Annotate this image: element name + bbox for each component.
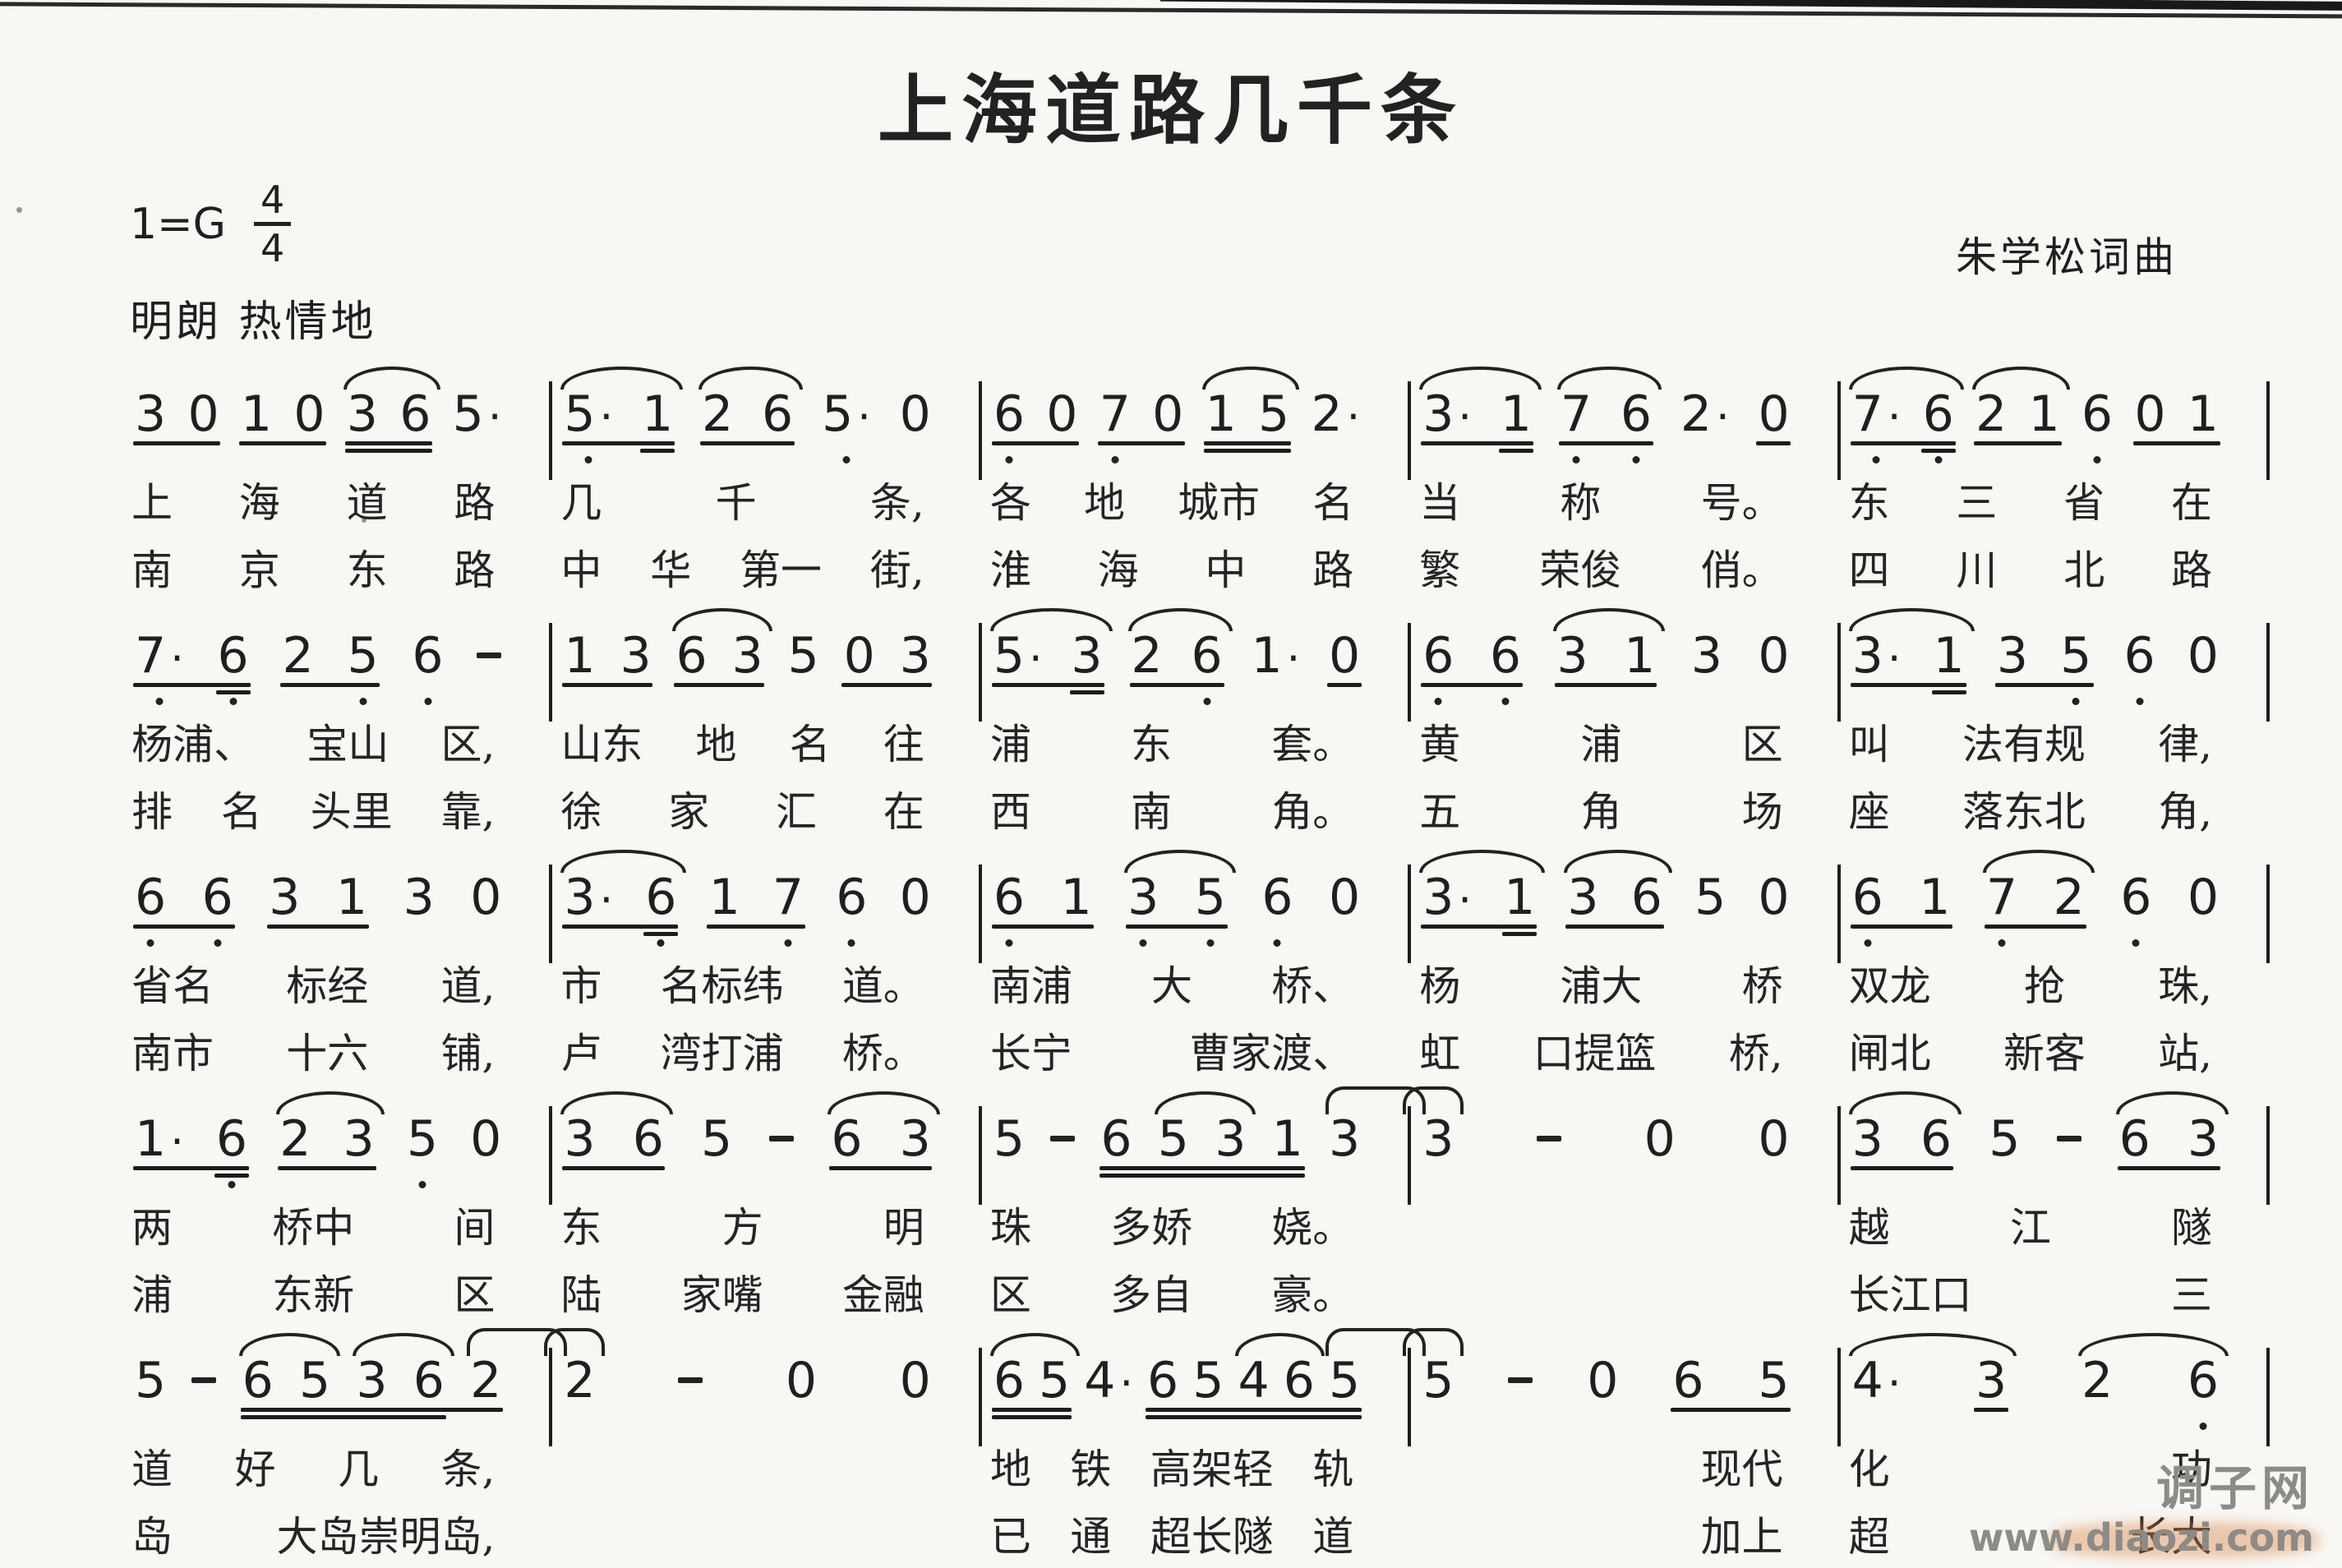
- lyric-line-1: 双龙抢珠,: [1841, 953, 2266, 1012]
- note: 2·: [1680, 390, 1730, 439]
- lyric-line-1: 省名标经道,: [123, 953, 549, 1012]
- note: 4: [1238, 1356, 1270, 1405]
- lyric-syllable: 两: [131, 1195, 173, 1254]
- note: 3: [732, 631, 763, 680]
- note: 0: [2188, 631, 2219, 680]
- lyric-syllable: 三: [1956, 470, 1997, 529]
- note: 6: [994, 873, 1025, 922]
- beam-line: [239, 441, 326, 445]
- octave-dot: [1632, 456, 1639, 463]
- system-4-measure-5: 36563越江隧长江口三: [1841, 1085, 2266, 1321]
- note: 5·: [453, 390, 502, 439]
- system-1: 3010365·上海道路南京东路5·1265·0几千条,中华第一街,607015…: [123, 360, 2270, 597]
- lyric-syllable: 化: [1849, 1437, 1890, 1496]
- note: 2·: [1311, 390, 1360, 439]
- lyric-syllable: 法有规: [1962, 712, 2086, 771]
- note: 0: [470, 873, 501, 922]
- lyric-syllable: 第一: [740, 537, 822, 597]
- octave-dot: [2136, 698, 2143, 705]
- note: 6: [645, 873, 676, 922]
- lyric-syllable: 套。: [1271, 712, 1353, 771]
- octave-dot: [1005, 456, 1012, 463]
- note: 2: [2054, 873, 2085, 922]
- note: 1: [1272, 1114, 1303, 1164]
- system-5-measure-1: 565362道好几条,岛大岛崇明岛,: [123, 1326, 549, 1563]
- note: 2: [2082, 1356, 2113, 1405]
- octave-dot: [424, 698, 431, 705]
- note: 2: [282, 631, 313, 680]
- note: 3: [356, 1356, 387, 1405]
- lyric-syllable: 条,: [870, 470, 924, 529]
- note: 4·: [1084, 1356, 1133, 1405]
- note: 2: [564, 1356, 595, 1405]
- lyric-syllable: 陆: [560, 1262, 602, 1321]
- lyric-syllable: 家嘴: [681, 1262, 763, 1321]
- lyric-syllable: 城市: [1178, 470, 1260, 529]
- lyric-syllable: 往: [883, 712, 924, 771]
- lyric-line-1: 两桥中间: [123, 1195, 549, 1254]
- note: 3: [900, 1114, 931, 1164]
- note: [1537, 1136, 1561, 1141]
- note: 3: [1567, 873, 1598, 922]
- lyric-line-2: [552, 1492, 978, 1540]
- system-4-measure-4: 300: [1411, 1085, 1837, 1298]
- lyric-syllable: 在: [2171, 470, 2212, 529]
- note: 0: [2188, 873, 2219, 922]
- lyric-line-1: 黄浦区: [1411, 712, 1837, 771]
- note: 6: [1672, 1356, 1703, 1405]
- beam-line: [841, 683, 932, 687]
- note: 0: [1758, 873, 1789, 922]
- beam-line: [345, 449, 432, 453]
- beam-line: [1146, 1408, 1362, 1412]
- lyric-line-2: 卢湾打浦桥。: [552, 1021, 978, 1080]
- note: 6: [633, 1114, 664, 1164]
- note: 0: [1587, 1356, 1618, 1405]
- lyric-line-2: 已通超长隧道: [982, 1504, 1408, 1563]
- system-3-measure-5: 617260双龙抢珠,闸北新客站,: [1841, 843, 2266, 1080]
- lyric-syllable: 海: [1098, 537, 1139, 597]
- lyric-syllable: 省: [2063, 470, 2105, 529]
- barline: [2266, 865, 2270, 963]
- lyric-syllable: 荣俊: [1539, 537, 1621, 597]
- system-3-measure-3: 613560南浦大桥、长宁曹家渡、: [982, 843, 1408, 1080]
- system-3-measure-1: 663130省名标经道,南市十六铺,: [123, 843, 549, 1080]
- note: 6: [1852, 873, 1883, 922]
- lyric-line-2: 繁荣俊俏。: [1411, 537, 1837, 597]
- lyric-syllable: 东: [1849, 470, 1890, 529]
- lyric-syllable: 卢: [560, 1021, 602, 1080]
- note: 3: [403, 873, 435, 922]
- octave-dot: [155, 698, 163, 705]
- octave-dot: [1934, 456, 1942, 463]
- beam-line: [280, 683, 380, 687]
- note: [191, 1377, 216, 1383]
- beam-line: [1204, 449, 1291, 453]
- lyric-syllable: 路: [1312, 537, 1353, 597]
- beam-line: [1100, 1166, 1305, 1170]
- octave-dot: [1111, 456, 1118, 463]
- note: 3: [1975, 1356, 2007, 1405]
- system-5: 565362道好几条,岛大岛崇明岛,200654·65465地铁高架轻轨已通超长…: [123, 1326, 2270, 1563]
- time-signature: 4 4: [254, 180, 291, 269]
- lyric-syllable: 桥、: [1271, 953, 1353, 1012]
- beam-line: [1671, 1408, 1791, 1412]
- lyric-syllable: 曹家渡、: [1189, 1021, 1353, 1080]
- lyric-line-2: 岛大岛崇明岛,: [123, 1504, 549, 1563]
- lyric-syllable: 现代: [1701, 1437, 1783, 1496]
- note: 6: [135, 873, 166, 922]
- lyric-syllable: 称: [1560, 470, 1601, 529]
- lyric-syllable: 杨: [1419, 953, 1460, 1012]
- beam-line: [278, 1166, 376, 1170]
- lyric-syllable: 新客: [2003, 1021, 2086, 1080]
- lyric-syllable: 东新: [272, 1262, 354, 1321]
- note: 6: [762, 390, 793, 439]
- note: 6: [994, 1356, 1025, 1405]
- lyric-syllable: 场: [1742, 779, 1783, 838]
- lyric-syllable: 铁: [1070, 1437, 1111, 1496]
- note: 1: [1206, 390, 1237, 439]
- lyric-line-1: 山东地名往: [552, 712, 978, 771]
- lyric-syllable: 角: [1580, 779, 1621, 838]
- note: 0: [1046, 390, 1077, 439]
- note: 1: [1624, 631, 1655, 680]
- lyric-syllable: 隧: [2171, 1195, 2212, 1254]
- octave-dot: [2072, 698, 2080, 705]
- lyric-syllable: 超长隧: [1150, 1504, 1274, 1563]
- note: 1: [336, 873, 367, 922]
- note: 6: [836, 873, 867, 922]
- key-label: 1=G: [130, 200, 226, 249]
- note: 1: [1919, 873, 1950, 922]
- lyric-line-1: 当称号。: [1411, 470, 1837, 529]
- lyric-syllable: 间: [454, 1195, 495, 1254]
- lyric-syllable: 市: [560, 953, 602, 1012]
- lyric-syllable: 桥: [1742, 953, 1783, 1012]
- lyric-syllable: 名: [1312, 470, 1353, 529]
- lyric-syllable: 五: [1419, 779, 1460, 838]
- lyric-syllable: 道: [131, 1437, 173, 1496]
- beam-line: [1565, 925, 1664, 929]
- note: 3: [1422, 1114, 1454, 1164]
- note: 0: [1329, 873, 1360, 922]
- note: 0: [470, 1114, 501, 1164]
- note: 3: [1127, 873, 1159, 922]
- lyric-syllable: 明: [883, 1195, 924, 1254]
- lyric-syllable: 轨: [1312, 1437, 1353, 1496]
- note: 6: [216, 1114, 247, 1164]
- lyric-syllable: 区,: [441, 712, 496, 771]
- lyric-syllable: 十六: [286, 1021, 368, 1080]
- note: 5·: [994, 631, 1043, 680]
- note: 3: [269, 873, 300, 922]
- lyric-line-1: 越江隧: [1841, 1195, 2266, 1254]
- lyric-syllable: 南浦: [990, 953, 1072, 1012]
- lyric-syllable: 家: [668, 779, 709, 838]
- beam-line: [133, 441, 220, 445]
- note: 5·: [564, 390, 613, 439]
- note: 2: [1131, 631, 1162, 680]
- lyric-syllable: 珠,: [2158, 953, 2212, 1012]
- note: 6: [1100, 1114, 1132, 1164]
- beam-line: [1070, 683, 1104, 687]
- beam-line: [1100, 1174, 1305, 1178]
- lyric-syllable: 抢: [2024, 953, 2065, 1012]
- lyric-syllable: 路: [454, 470, 495, 529]
- notes-row: 300: [1411, 1085, 1837, 1185]
- lyric-syllable: 已: [990, 1504, 1031, 1563]
- octave-dot: [1864, 939, 1871, 947]
- note: 1·: [135, 1114, 184, 1164]
- system-5-measure-3: 654·65465地铁高架轻轨已通超长隧道: [982, 1326, 1408, 1563]
- lyric-syllable: 名标纬: [661, 953, 784, 1012]
- lyric-line-2: 南京东路: [123, 537, 549, 597]
- beam-line: [1146, 1415, 1362, 1419]
- lyric-line-1: 叫法有规律,: [1841, 712, 2266, 771]
- note: 6: [675, 631, 707, 680]
- lyric-syllable: 杨浦、: [131, 712, 255, 771]
- lyric-syllable: 四: [1849, 537, 1890, 597]
- beam-line: [992, 925, 1094, 929]
- system-2: 7·6256杨浦、宝山区,排名头里靠,1363503山东地名往徐家汇在5·326…: [123, 602, 2270, 838]
- time-signature-numerator: 4: [254, 180, 291, 226]
- lyric-line-1: 东三省在: [1841, 470, 2266, 529]
- lyric-syllable: 方: [722, 1195, 763, 1254]
- lyric-syllable: 东: [560, 1195, 602, 1254]
- barline: [2266, 381, 2270, 480]
- note: 0: [786, 1356, 817, 1405]
- octave-dot: [1206, 939, 1214, 947]
- octave-dot: [2132, 939, 2140, 947]
- beam-line: [267, 925, 369, 929]
- lyric-syllable: 南: [1131, 779, 1172, 838]
- note: 0: [900, 873, 931, 922]
- note: 1: [564, 631, 595, 680]
- lyric-line-2: 排名头里靠,: [123, 779, 549, 838]
- lyric-syllable: 江: [2010, 1195, 2051, 1254]
- beam-line: [1974, 1408, 2008, 1412]
- lyric-syllable: 东: [347, 537, 388, 597]
- note: 6: [994, 390, 1025, 439]
- octave-dot: [229, 698, 237, 705]
- lyric-syllable: 几: [338, 1437, 379, 1496]
- system-2-measure-1: 7·6256杨浦、宝山区,排名头里靠,: [123, 602, 549, 838]
- lyric-syllable: 珠: [990, 1195, 1031, 1254]
- lyric-line-2: 虹口提篮桥,: [1411, 1021, 1837, 1080]
- note: 6: [1490, 631, 1521, 680]
- lyric-syllable: 几: [560, 470, 602, 529]
- system-4: 1·62350两桥中间浦东新区36563东方明陆家嘴金融565313珠多娇娆。区…: [123, 1085, 2270, 1321]
- lyric-line-2: 浦东新区: [123, 1262, 549, 1321]
- lyric-line-2: 区多自豪。: [982, 1262, 1408, 1321]
- lyric-syllable: 高架轻: [1150, 1437, 1274, 1496]
- lyric-syllable: 站,: [2158, 1021, 2212, 1080]
- note: 6: [242, 1356, 274, 1405]
- lyric-syllable: 各: [990, 470, 1031, 529]
- lyric-syllable: 三: [2171, 1262, 2212, 1321]
- lyric-syllable: 名: [221, 779, 262, 838]
- lyric-syllable: 汇: [776, 779, 817, 838]
- system-2-measure-2: 1363503山东地名往徐家汇在: [552, 602, 978, 838]
- note: [769, 1136, 794, 1141]
- octave-dot: [2199, 1423, 2206, 1430]
- beam-line: [214, 1174, 249, 1178]
- note: 1: [1501, 390, 1532, 439]
- lyric-syllable: 在: [883, 779, 924, 838]
- lyric-line-2: [1411, 1251, 1837, 1298]
- note: 3: [347, 390, 378, 439]
- beam-line: [562, 683, 652, 687]
- octave-dot: [842, 456, 850, 463]
- lyric-syllable: 号。: [1701, 470, 1783, 529]
- beam-line: [1502, 925, 1537, 929]
- beam-line: [707, 925, 805, 929]
- lyric-line-2: 西南角。: [982, 779, 1408, 838]
- beam-line: [1851, 1166, 1953, 1170]
- beam-line: [640, 441, 675, 445]
- lyric-syllable: 长江口: [1849, 1262, 1972, 1321]
- lyric-line-1: 现代: [1411, 1437, 1837, 1496]
- note: 6: [202, 873, 233, 922]
- note: 4·: [1852, 1356, 1902, 1405]
- note: 3: [1557, 631, 1588, 680]
- lyric-line-2: 中华第一街,: [552, 537, 978, 597]
- note: 3: [1997, 631, 2028, 680]
- note: 3: [135, 390, 166, 439]
- lyric-syllable: 娆。: [1271, 1195, 1353, 1254]
- system-3-measure-2: 3·61760市名标纬道。卢湾打浦桥。: [552, 843, 978, 1080]
- note: 2: [702, 390, 733, 439]
- beam-line: [216, 683, 251, 687]
- lyric-syllable: 大: [1151, 953, 1192, 1012]
- octave-dot: [1005, 939, 1012, 947]
- system-1-measure-2: 5·1265·0几千条,中华第一街,: [552, 360, 978, 597]
- lyric-line-1: 杨浦、宝山区,: [123, 712, 549, 771]
- barline: [2266, 623, 2270, 722]
- beam-line: [992, 441, 1079, 445]
- lyric-line-2: 加上: [1411, 1504, 1837, 1563]
- beam-line: [992, 1415, 1072, 1419]
- beam-line: [1499, 441, 1533, 445]
- note: 5: [135, 1356, 166, 1405]
- note: 6: [1147, 1356, 1178, 1405]
- beam-line: [1559, 441, 1653, 445]
- note: 5: [1195, 873, 1226, 922]
- watermark: 调子网 www.diaozi.com: [1969, 1461, 2314, 1560]
- system-3: 663130省名标经道,南市十六铺,3·61760市名标纬道。卢湾打浦桥。613…: [123, 843, 2270, 1080]
- system-2-measure-3: 5·3261·0浦东套。西南角。: [982, 602, 1408, 838]
- octave-dot: [1572, 456, 1579, 463]
- note: 3: [1071, 631, 1102, 680]
- system-4-measure-2: 36563东方明陆家嘴金融: [552, 1085, 978, 1321]
- lyric-syllable: 当: [1419, 470, 1460, 529]
- lyric-syllable: 浦大: [1560, 953, 1642, 1012]
- beam-line: [674, 683, 764, 687]
- notes-row: 4·326: [1841, 1326, 2266, 1427]
- time-signature-denominator: 4: [260, 226, 284, 268]
- lyric-syllable: 名: [790, 712, 831, 771]
- beam-line: [1327, 683, 1362, 687]
- note: 5: [701, 1114, 732, 1164]
- lyric-syllable: 加上: [1701, 1504, 1783, 1563]
- score-header: 1=G 4 4 明朗 热情地 朱学松词曲: [0, 159, 2342, 348]
- lyric-syllable: 豪。: [1271, 1262, 1353, 1321]
- note: 6: [1422, 631, 1454, 680]
- lyric-line-2: 五角场: [1411, 779, 1837, 838]
- note: 3: [1852, 1114, 1883, 1164]
- lyric-syllable: 金融: [842, 1262, 924, 1321]
- octave-dot: [585, 456, 592, 463]
- note: 3: [2188, 1114, 2219, 1164]
- lyric-line-2: 淮海中路: [982, 537, 1408, 597]
- lyric-syllable: 区: [990, 1262, 1031, 1321]
- beam-line: [829, 1166, 932, 1170]
- lyric-syllable: 道: [1312, 1504, 1353, 1563]
- note: 0: [1758, 631, 1789, 680]
- note: 5·: [822, 390, 871, 439]
- note: 5: [1158, 1114, 1189, 1164]
- note: 7: [772, 873, 804, 922]
- octave-dot: [214, 939, 221, 947]
- lyric-line-1: 几千条,: [552, 470, 978, 529]
- lyric-syllable: 黄: [1419, 712, 1460, 771]
- note: 0: [1152, 390, 1183, 439]
- lyric-line-2: 徐家汇在: [552, 779, 978, 838]
- notes-row: 200: [552, 1326, 978, 1427]
- lyric-syllable: 头里: [311, 779, 393, 838]
- lyric-syllable: 地: [990, 1437, 1031, 1496]
- note: 0: [293, 390, 325, 439]
- lyric-line-1: 上海道路: [123, 470, 549, 529]
- note: 1: [241, 390, 272, 439]
- lyric-syllable: 大岛崇明岛,: [277, 1504, 496, 1563]
- note: 6: [2123, 631, 2155, 680]
- lyric-syllable: 东: [1131, 712, 1172, 771]
- lyric-syllable: 地: [696, 712, 737, 771]
- lyric-syllable: 口提篮: [1533, 1021, 1656, 1080]
- note: 0: [1329, 631, 1360, 680]
- octave-dot: [1274, 939, 1281, 947]
- beam-line: [643, 925, 678, 929]
- lyric-syllable: 徐: [560, 779, 602, 838]
- lyric-syllable: 南市: [131, 1021, 214, 1080]
- key-signature: 1=G 4 4: [130, 180, 377, 269]
- lyric-syllable: 海: [239, 470, 280, 529]
- system-2-measure-5: 3·13560叫法有规律,座落东北角,: [1841, 602, 2266, 838]
- lyric-syllable: 浦: [990, 712, 1031, 771]
- note: 0: [1644, 1114, 1676, 1164]
- octave-dot: [147, 939, 154, 947]
- lyric-line-1: 珠多娇娆。: [982, 1195, 1408, 1254]
- beam-line: [241, 1408, 446, 1412]
- lyric-line-2: 陆家嘴金融: [552, 1262, 978, 1321]
- lyric-line-1: 市名标纬道。: [552, 953, 978, 1012]
- lyric-line-1: 东方明: [552, 1195, 978, 1254]
- beam-line: [1502, 932, 1537, 936]
- note: 5: [1192, 1356, 1224, 1405]
- lyric-syllable: 川: [1956, 537, 1997, 597]
- note: 3: [1215, 1114, 1246, 1164]
- note: 2: [279, 1114, 311, 1164]
- lyric-syllable: 湾打浦: [661, 1021, 784, 1080]
- octave-dot: [1203, 698, 1210, 705]
- lyric-syllable: 越: [1849, 1195, 1890, 1254]
- beam-line: [345, 441, 432, 445]
- lyric-line-1: 杨浦大桥: [1411, 953, 1837, 1012]
- lyric-syllable: 京: [239, 537, 280, 597]
- lyric-line-1: [552, 1437, 978, 1484]
